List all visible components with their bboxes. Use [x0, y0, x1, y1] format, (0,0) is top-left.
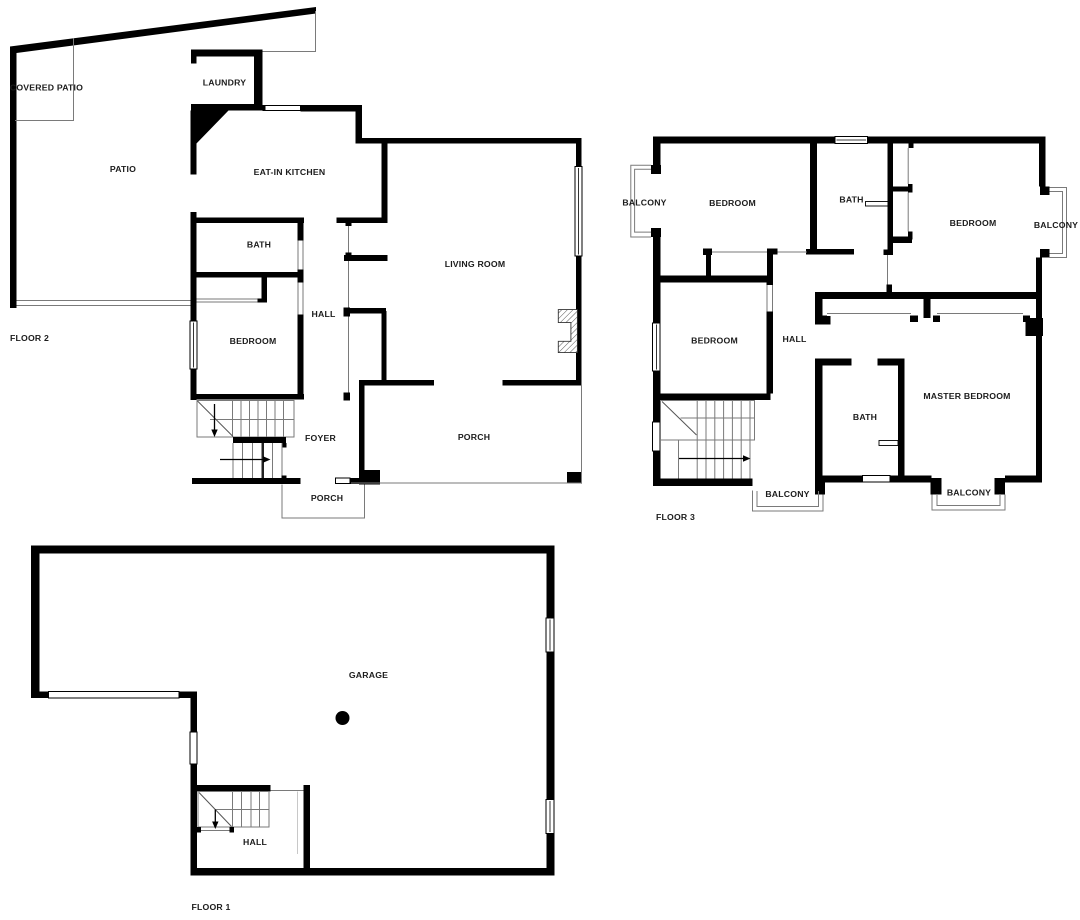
- svg-text:FLOOR 3: FLOOR 3: [656, 512, 695, 522]
- svg-text:BATH: BATH: [839, 195, 863, 205]
- svg-text:BEDROOM: BEDROOM: [709, 198, 756, 208]
- svg-text:FLOOR 1: FLOOR 1: [192, 902, 231, 912]
- svg-text:BEDROOM: BEDROOM: [950, 218, 997, 228]
- svg-text:BATH: BATH: [853, 412, 877, 422]
- svg-text:BATH: BATH: [247, 240, 271, 250]
- svg-text:BEDROOM: BEDROOM: [230, 336, 277, 346]
- svg-text:PATIO: PATIO: [110, 164, 136, 174]
- svg-text:HALL: HALL: [243, 837, 267, 847]
- svg-text:MASTER BEDROOM: MASTER BEDROOM: [923, 391, 1010, 401]
- svg-text:BALCONY: BALCONY: [947, 488, 991, 498]
- svg-text:FLOOR 2: FLOOR 2: [10, 333, 49, 343]
- svg-text:FOYER: FOYER: [305, 433, 336, 443]
- svg-text:HALL: HALL: [783, 334, 807, 344]
- svg-text:BALCONY: BALCONY: [622, 198, 666, 208]
- svg-text:COVERED PATIO: COVERED PATIO: [10, 83, 83, 93]
- svg-text:HALL: HALL: [312, 309, 336, 319]
- svg-text:BALCONY: BALCONY: [765, 489, 809, 499]
- svg-text:GARAGE: GARAGE: [349, 670, 388, 680]
- svg-text:EAT-IN KITCHEN: EAT-IN KITCHEN: [254, 167, 326, 177]
- svg-text:BALCONY: BALCONY: [1034, 220, 1078, 230]
- svg-text:PORCH: PORCH: [458, 432, 490, 442]
- svg-text:LAUNDRY: LAUNDRY: [203, 78, 247, 88]
- svg-text:LIVING ROOM: LIVING ROOM: [445, 259, 506, 269]
- svg-text:BEDROOM: BEDROOM: [691, 336, 738, 346]
- svg-text:PORCH: PORCH: [311, 493, 343, 503]
